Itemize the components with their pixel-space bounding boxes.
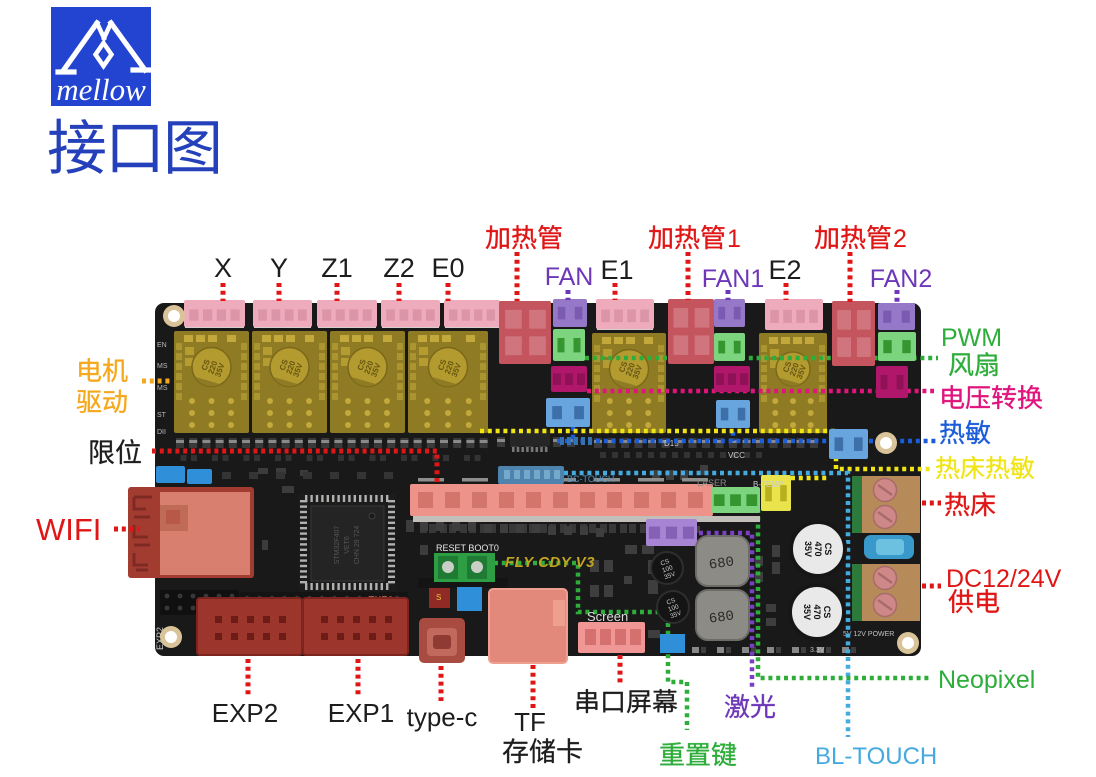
svg-text:ST: ST [157,412,167,419]
svg-text:FAN1: FAN1 [702,265,765,293]
svg-text:MS: MS [157,385,168,392]
svg-text:X: X [214,253,232,283]
svg-text:35V: 35V [803,541,813,557]
svg-text:DC12/24V: DC12/24V [946,565,1062,593]
svg-text:EXP2: EXP2 [212,698,279,728]
svg-text:PWM: PWM [941,324,1002,352]
svg-text:3.3V: 3.3V [810,647,825,654]
svg-text:LASER: LASER [697,478,727,488]
svg-text:EXP1: EXP1 [328,698,395,728]
svg-text:FAN2: FAN2 [870,265,933,293]
svg-text:FAN: FAN [545,263,594,291]
svg-text:DII: DII [157,429,166,436]
svg-text:CS: CS [823,543,833,556]
svg-text:E1: E1 [600,255,633,285]
svg-text:RESET BOOT0: RESET BOOT0 [436,543,499,553]
svg-text:1: 1 [727,225,741,253]
svg-text:Z2: Z2 [383,253,415,283]
svg-text:470: 470 [813,541,823,556]
svg-text:Screen: Screen [587,609,628,624]
svg-text:mellow: mellow [56,72,146,107]
svg-text:BC-TOUCH: BC-TOUCH [567,474,614,484]
svg-text:Y: Y [270,253,288,283]
svg-text:E0: E0 [431,253,464,283]
svg-text:E2: E2 [768,255,801,285]
svg-text:MS: MS [157,363,168,370]
svg-text:EN: EN [157,342,167,349]
svg-text:Z1: Z1 [321,253,353,283]
svg-text:BL-TOUCH: BL-TOUCH [815,743,937,770]
svg-text:STM32F407: STM32F407 [334,526,341,565]
svg-text:B-TEMP: B-TEMP [753,480,783,489]
svg-text:CHN 29 724: CHN 29 724 [354,526,361,565]
svg-text:FLY CDY V3: FLY CDY V3 [505,554,595,571]
svg-text:Neopixel: Neopixel [938,666,1035,694]
svg-text:type-c: type-c [407,702,478,732]
svg-text:VCC: VCC [728,451,745,460]
svg-text:VET6: VET6 [344,536,351,554]
svg-text:2: 2 [893,225,907,253]
svg-text:CS: CS [822,606,832,619]
svg-text:S: S [436,593,441,602]
svg-text:TF: TF [514,707,546,737]
svg-text:35V: 35V [802,604,812,620]
svg-text:470: 470 [812,604,822,619]
svg-text:WIFI: WIFI [36,512,101,547]
svg-text:5V 12V POWER: 5V 12V POWER [843,631,894,638]
